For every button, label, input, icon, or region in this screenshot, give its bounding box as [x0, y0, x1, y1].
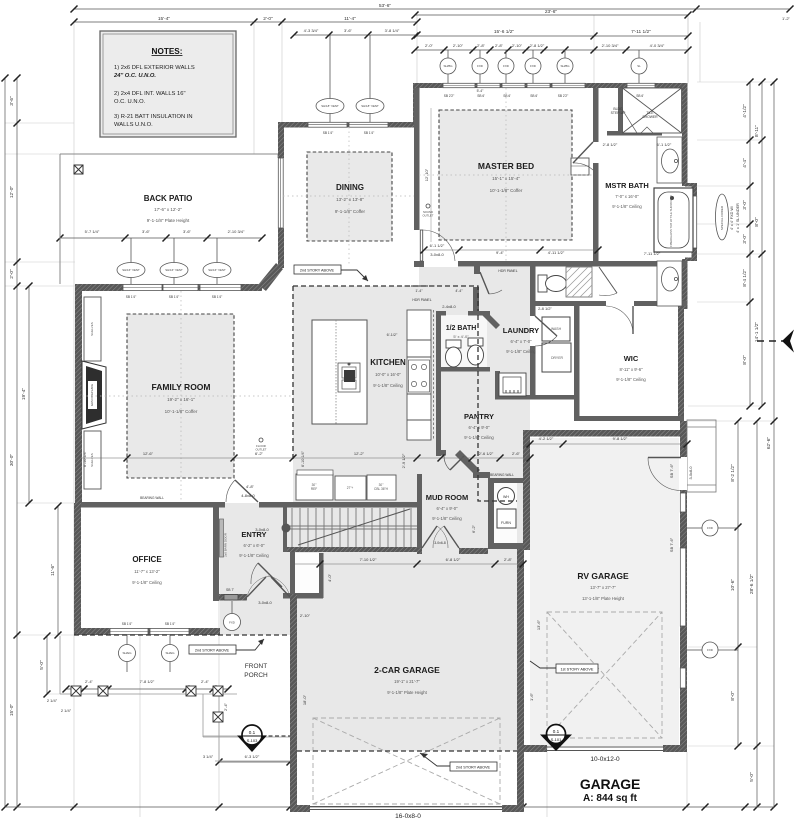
svg-text:BEARING WALL: BEARING WALL — [140, 496, 164, 500]
svg-text:4'-8": 4'-8" — [246, 484, 255, 489]
svg-text:BEARING WALL: BEARING WALL — [490, 473, 514, 477]
svg-text:3'-6": 3'-6" — [183, 229, 192, 234]
svg-text:2'-8": 2'-8" — [477, 43, 486, 48]
svg-text:62'-6": 62'-6" — [766, 437, 772, 450]
svg-text:12'-6": 12'-6" — [143, 451, 154, 456]
svg-text:PORCH: PORCH — [244, 672, 268, 679]
svg-text:3'-0": 3'-0" — [742, 200, 748, 210]
svg-text:SHELVES: SHELVES — [90, 322, 94, 336]
svg-text:SH/BG: SH/BG — [444, 64, 454, 68]
svg-text:9'-1-1/8" Ceiling: 9'-1-1/8" Ceiling — [132, 580, 162, 585]
svg-text:2'-10": 2'-10" — [300, 613, 311, 618]
svg-text:2'-0": 2'-0" — [263, 16, 273, 22]
svg-text:SB 1'4": SB 1'4" — [169, 295, 179, 299]
svg-text:2'-8": 2'-8" — [504, 557, 513, 562]
svg-text:2'-10": 2'-10" — [512, 43, 523, 48]
svg-text:1/2 BATH: 1/2 BATH — [446, 325, 477, 332]
svg-text:27"+: 27"+ — [347, 486, 354, 490]
svg-text:9'-1-1/8" Ceiling: 9'-1-1/8" Ceiling — [612, 204, 642, 209]
svg-text:6'-4" x 9'-0": 6'-4" x 9'-0" — [468, 425, 490, 430]
svg-text:WH: WH — [503, 495, 509, 499]
svg-text:FXD: FXD — [707, 648, 713, 652]
svg-text:4'-2 1/2": 4'-2 1/2" — [539, 436, 554, 441]
svg-text:2'-0": 2'-0" — [425, 43, 434, 48]
svg-text:MSTR BATH: MSTR BATH — [605, 181, 649, 190]
svg-text:SB 7'-6": SB 7'-6" — [669, 463, 674, 478]
svg-text:3 1/4": 3 1/4" — [203, 754, 214, 759]
svg-text:SB 1'4": SB 1'4" — [323, 131, 333, 135]
svg-text:SB 1'4": SB 1'4" — [364, 131, 374, 135]
svg-text:PANTRY: PANTRY — [464, 412, 494, 421]
svg-text:3-0x8-0: 3-0x8-0 — [430, 252, 444, 257]
svg-text:6'-4" x 7'-0": 6'-4" x 7'-0" — [510, 339, 532, 344]
svg-text:0.1: 0.1 — [553, 729, 560, 734]
svg-text:RV GARAGE: RV GARAGE — [577, 571, 629, 581]
svg-text:6'-10 1/4": 6'-10 1/4" — [83, 450, 87, 467]
svg-text:10-0x12-0: 10-0x12-0 — [590, 756, 620, 763]
svg-text:4'-4": 4'-4" — [455, 289, 463, 293]
svg-text:MASTER BED: MASTER BED — [478, 161, 534, 171]
svg-text:MUD ROOM: MUD ROOM — [426, 493, 469, 502]
svg-text:HDR PANEL: HDR PANEL — [498, 269, 517, 273]
svg-text:SL: SL — [637, 64, 641, 68]
svg-text:3-0x8-0: 3-0x8-0 — [689, 467, 693, 480]
svg-text:2nd STORY ABOVE: 2nd STORY ABOVE — [195, 649, 230, 653]
svg-text:3'-6": 3'-6" — [344, 28, 353, 33]
svg-text:11'-7" x 13'-2": 11'-7" x 13'-2" — [134, 569, 160, 574]
svg-text:2'-4": 2'-4" — [223, 702, 228, 711]
svg-text:53'-6": 53'-6" — [379, 3, 392, 9]
svg-text:10'-1-1/8" Coffer: 10'-1-1/8" Coffer — [490, 188, 523, 193]
svg-text:13'-2" x 13'-8": 13'-2" x 13'-8" — [336, 197, 364, 202]
svg-text:SPECIAL ORDER: SPECIAL ORDER — [720, 205, 724, 230]
svg-text:4'-3 3/4": 4'-3 3/4" — [304, 28, 319, 33]
svg-text:4' x 1' SL UNDER: 4' x 1' SL UNDER — [736, 203, 740, 233]
svg-text:6'-10 1/4": 6'-10 1/4" — [301, 450, 305, 467]
svg-text:SB 6': SB 6' — [636, 94, 644, 98]
svg-text:2'-4": 2'-4" — [201, 679, 210, 684]
svg-text:OFFICE: OFFICE — [132, 555, 162, 564]
svg-text:2'-10": 2'-10" — [453, 43, 464, 48]
svg-text:3'-8 1/4": 3'-8 1/4" — [385, 28, 400, 33]
svg-text:2nd STORY ABOVE: 2nd STORY ABOVE — [456, 766, 491, 770]
svg-text:2'-10 3/4": 2'-10 3/4" — [228, 229, 245, 234]
svg-text:14'-1 1/2": 14'-1 1/2" — [754, 322, 760, 343]
svg-text:16-0x8-0: 16-0x8-0 — [395, 813, 421, 820]
svg-text:SH/BG: SH/BG — [561, 64, 571, 68]
svg-text:9'-1-1/8" Ceiling: 9'-1-1/8" Ceiling — [239, 553, 269, 558]
svg-text:SB 2'2": SB 2'2" — [444, 94, 454, 98]
svg-text:7'-10 1/2": 7'-10 1/2" — [360, 557, 377, 562]
svg-text:FXD: FXD — [477, 64, 483, 68]
svg-text:4' x 4' FXD W/: 4' x 4' FXD W/ — [730, 205, 734, 230]
svg-text:2'-10 3/4": 2'-10 3/4" — [602, 43, 619, 48]
svg-text:SHELVES: SHELVES — [90, 453, 94, 467]
svg-text:19'-2" x 16'-1": 19'-2" x 16'-1" — [167, 397, 195, 402]
svg-text:10'-6": 10'-6" — [730, 579, 736, 592]
svg-text:13'-1-1/8" Plate Height: 13'-1-1/8" Plate Height — [582, 596, 625, 601]
svg-text:SH/18" VENT: SH/18" VENT — [361, 104, 379, 108]
svg-text:23'-6": 23'-6" — [545, 9, 558, 15]
svg-text:15'-1" x 15'-4": 15'-1" x 15'-4" — [492, 176, 520, 181]
svg-text:1) 2x6 DFL EXTERIOR WALLS: 1) 2x6 DFL EXTERIOR WALLS — [114, 65, 195, 71]
svg-text:FXD: FXD — [530, 64, 536, 68]
svg-text:19'-1" x 21'-7": 19'-1" x 21'-7" — [394, 679, 420, 684]
svg-text:24" O.C. U.N.O.: 24" O.C. U.N.O. — [113, 73, 156, 79]
svg-text:6'-4" x 9'-0": 6'-4" x 9'-0" — [436, 506, 458, 511]
svg-text:9'-1-1/8" Ceiling: 9'-1-1/8" Ceiling — [506, 349, 536, 354]
svg-text:3'-6": 3'-6" — [9, 96, 15, 106]
svg-text:4'-4": 4'-4" — [742, 158, 748, 168]
svg-text:S-101: S-101 — [551, 737, 562, 742]
svg-text:STEP-UP: STEP-UP — [611, 111, 626, 115]
svg-text:1'-6": 1'-6" — [529, 692, 534, 701]
svg-text:REF: REF — [311, 487, 317, 491]
svg-text:SB 6': SB 6' — [477, 94, 485, 98]
svg-text:CBL 36"H: CBL 36"H — [374, 487, 389, 491]
svg-text:FXD: FXD — [229, 621, 235, 625]
svg-text:4'-1/2": 4'-1/2" — [742, 104, 748, 118]
svg-text:7'-8 1/2": 7'-8 1/2" — [140, 679, 155, 684]
svg-text:A: 844 sq ft: A: 844 sq ft — [583, 793, 638, 804]
svg-text:1'-4": 1'-4" — [415, 289, 423, 293]
svg-text:18'-0": 18'-0" — [302, 694, 307, 705]
svg-text:13'-7" x 27'-7": 13'-7" x 27'-7" — [590, 585, 616, 590]
svg-text:SH/16" VENT: SH/16" VENT — [208, 268, 226, 272]
svg-text:11'-6": 11'-6" — [50, 564, 56, 576]
svg-text:17'-6" x 12'-2": 17'-6" x 12'-2" — [154, 207, 182, 212]
svg-text:9'-1-1/8" Plate Height: 9'-1-1/8" Plate Height — [147, 218, 190, 223]
svg-text:30'-0": 30'-0" — [9, 454, 15, 467]
svg-text:SH/16" VENT: SH/16" VENT — [165, 268, 183, 272]
svg-text:3-0x8-0: 3-0x8-0 — [258, 600, 272, 605]
svg-text:SB 6': SB 6' — [503, 94, 511, 98]
svg-text:SH/16" VENT: SH/16" VENT — [122, 268, 140, 272]
svg-text:1st STORY ABOVE: 1st STORY ABOVE — [561, 668, 594, 672]
svg-text:4'-0": 4'-0" — [327, 573, 332, 582]
svg-text:LAUNDRY: LAUNDRY — [503, 326, 539, 335]
svg-text:3-0x6-8: 3-0x6-8 — [434, 541, 446, 545]
svg-text:9'-1-1/8" Ceiling: 9'-1-1/8" Ceiling — [432, 516, 462, 521]
svg-text:2'-9 1/2": 2'-9 1/2" — [401, 453, 406, 468]
svg-text:2'-4": 2'-4" — [85, 679, 94, 684]
svg-text:12'-10": 12'-10" — [424, 168, 429, 181]
svg-text:3'-0": 3'-0" — [742, 234, 748, 244]
svg-text:GARAGE: GARAGE — [580, 776, 640, 792]
svg-text:2'-8 1/2": 2'-8 1/2" — [603, 142, 618, 147]
svg-text:SB 7'-6": SB 7'-6" — [669, 537, 674, 552]
svg-text:2) 2x4 DFL INT. WALLS 16": 2) 2x4 DFL INT. WALLS 16" — [114, 91, 186, 97]
svg-text:SB 1'4": SB 1'4" — [126, 295, 136, 299]
svg-text:O.C. U.N.O.: O.C. U.N.O. — [114, 99, 146, 105]
svg-text:8'-0": 8'-0" — [730, 691, 736, 701]
svg-text:FIBERGLASS TUB W/ TILE SURROUN: FIBERGLASS TUB W/ TILE SURROUND — [669, 195, 673, 247]
svg-text:SHOWER: SHOWER — [642, 115, 658, 119]
svg-text:12'-0": 12'-0" — [9, 186, 15, 199]
svg-text:SH/18" VENT: SH/18" VENT — [321, 104, 339, 108]
svg-text:2-CAR GARAGE: 2-CAR GARAGE — [374, 665, 440, 675]
svg-text:6'-2": 6'-2" — [255, 451, 264, 456]
svg-text:2'-6": 2'-6" — [512, 451, 521, 456]
svg-text:SB 1'4": SB 1'4" — [122, 622, 132, 626]
svg-text:WIC: WIC — [624, 354, 639, 363]
svg-text:4'-11 1/2": 4'-11 1/2" — [548, 250, 565, 255]
svg-text:2-8 1/2": 2-8 1/2" — [538, 306, 552, 311]
svg-text:8'-11" x 9'-6": 8'-11" x 9'-6" — [619, 367, 643, 372]
svg-text:15'-0": 15'-0" — [9, 704, 15, 717]
svg-text:2'-8 1/2": 2'-8 1/2" — [530, 43, 545, 48]
svg-text:S-103: S-103 — [247, 738, 258, 743]
svg-text:HDR PANEL: HDR PANEL — [412, 298, 431, 302]
svg-text:8'-11": 8'-11" — [754, 125, 760, 137]
svg-text:5'-0": 5'-0" — [39, 660, 45, 670]
svg-text:9'-1-1/8" Plate Height: 9'-1-1/8" Plate Height — [387, 690, 427, 695]
svg-text:BACK PATIO: BACK PATIO — [144, 194, 193, 203]
svg-text:10'-1-1/8" Coffer: 10'-1-1/8" Coffer — [165, 409, 198, 414]
svg-text:DINING: DINING — [336, 183, 364, 192]
svg-text:28'-6 1/2": 28'-6 1/2" — [749, 574, 755, 595]
svg-text:8'-0": 8'-0" — [742, 355, 748, 365]
svg-text:19'-4": 19'-4" — [21, 388, 27, 401]
svg-text:KITCHEN: KITCHEN — [370, 358, 406, 367]
svg-text:FURN: FURN — [501, 521, 511, 525]
svg-text:0.1: 0.1 — [249, 730, 256, 735]
svg-text:9'-1-1/8" Ceiling: 9'-1-1/8" Ceiling — [373, 383, 403, 388]
svg-text:3-0x8-0: 3-0x8-0 — [255, 527, 269, 532]
svg-text:6'-1/2": 6'-1/2" — [387, 333, 398, 337]
svg-text:11'-4": 11'-4" — [344, 16, 356, 22]
svg-text:OUTLET: OUTLET — [255, 448, 266, 452]
svg-text:4'-0 3/4": 4'-0 3/4" — [650, 43, 665, 48]
svg-text:2 1/4": 2 1/4" — [47, 698, 58, 703]
svg-text:1'-2": 1'-2" — [782, 16, 791, 21]
svg-text:6'-1 1/2": 6'-1 1/2" — [430, 243, 445, 248]
svg-text:FRONT: FRONT — [245, 663, 267, 670]
svg-text:5'-0": 5'-0" — [749, 772, 755, 782]
svg-text:SB 1'4": SB 1'4" — [165, 622, 175, 626]
svg-text:7'-0" x 16'-0": 7'-0" x 16'-0" — [615, 194, 639, 199]
svg-text:SB 7': SB 7' — [226, 588, 234, 592]
svg-text:FXD: FXD — [707, 526, 713, 530]
svg-text:WASH: WASH — [551, 327, 562, 331]
svg-text:2nd STORY ABOVE: 2nd STORY ABOVE — [300, 269, 335, 273]
svg-text:2x6 BARN DOOR: 2x6 BARN DOOR — [224, 532, 228, 557]
svg-text:2 1/4": 2 1/4" — [61, 708, 72, 713]
svg-text:12'-2": 12'-2" — [354, 451, 365, 456]
svg-text:8'-0": 8'-0" — [754, 217, 760, 227]
svg-text:13'-6": 13'-6" — [536, 619, 541, 630]
svg-text:SB 1'4": SB 1'4" — [212, 295, 222, 299]
svg-text:5' x 4'-0": 5' x 4'-0" — [453, 334, 469, 339]
svg-text:15'-4": 15'-4" — [158, 16, 171, 22]
svg-text:DRYER: DRYER — [551, 356, 563, 360]
svg-text:6'-3 1/2": 6'-3 1/2" — [245, 754, 260, 759]
svg-text:SH/EG: SH/EG — [166, 651, 176, 655]
svg-text:7'-11 1/2": 7'-11 1/2" — [631, 29, 651, 35]
svg-text:9'-1-1/8" Ceiling: 9'-1-1/8" Ceiling — [616, 377, 646, 382]
svg-text:8'-2 1/2": 8'-2 1/2" — [730, 464, 736, 482]
svg-text:9'-1-1/8" Coffer: 9'-1-1/8" Coffer — [335, 209, 366, 214]
svg-text:9'-8 1/2": 9'-8 1/2" — [613, 436, 628, 441]
svg-text:5'-4": 5'-4" — [477, 89, 485, 93]
svg-text:WALLS U.N.O.: WALLS U.N.O. — [114, 122, 153, 128]
svg-text:NOTES:: NOTES: — [152, 47, 183, 56]
svg-text:6'-2" x 6'-0": 6'-2" x 6'-0" — [243, 543, 265, 548]
svg-text:SB 6': SB 6' — [530, 94, 538, 98]
svg-text:FXD: FXD — [503, 64, 509, 68]
svg-text:GAS FIREPLACE: GAS FIREPLACE — [90, 384, 94, 406]
svg-text:SH/EG: SH/EG — [123, 651, 133, 655]
svg-text:9'-4": 9'-4" — [496, 250, 505, 255]
svg-text:2'-0": 2'-0" — [9, 269, 15, 279]
svg-text:4-8x8-0: 4-8x8-0 — [241, 493, 255, 498]
svg-text:FAMILY ROOM: FAMILY ROOM — [151, 382, 210, 392]
svg-text:8'-4 1/2": 8'-4 1/2" — [742, 269, 748, 287]
svg-text:2'-6 1/2": 2'-6 1/2" — [479, 451, 494, 456]
svg-text:6'-8 1/2": 6'-8 1/2" — [446, 557, 461, 562]
svg-text:5'-7 1/4": 5'-7 1/4" — [85, 229, 100, 234]
svg-text:2'-8": 2'-8" — [495, 43, 504, 48]
svg-text:15'-6 1/2": 15'-6 1/2" — [494, 29, 515, 35]
svg-text:3) R-21 BATT INSULATION IN: 3) R-21 BATT INSULATION IN — [114, 114, 193, 120]
svg-text:7'-11 1/2": 7'-11 1/2" — [644, 251, 661, 256]
svg-text:OUTLET: OUTLET — [422, 214, 433, 218]
svg-text:6'-1 1/2": 6'-1 1/2" — [657, 142, 672, 147]
svg-text:2-4x8-0: 2-4x8-0 — [442, 304, 456, 309]
svg-text:3'-6": 3'-6" — [142, 229, 151, 234]
svg-text:6'-2": 6'-2" — [471, 524, 476, 533]
svg-text:10'-0" x 16'-0": 10'-0" x 16'-0" — [375, 372, 401, 377]
svg-text:9'-1-1/8" Ceiling: 9'-1-1/8" Ceiling — [464, 435, 494, 440]
svg-text:SB 2'2": SB 2'2" — [558, 94, 568, 98]
